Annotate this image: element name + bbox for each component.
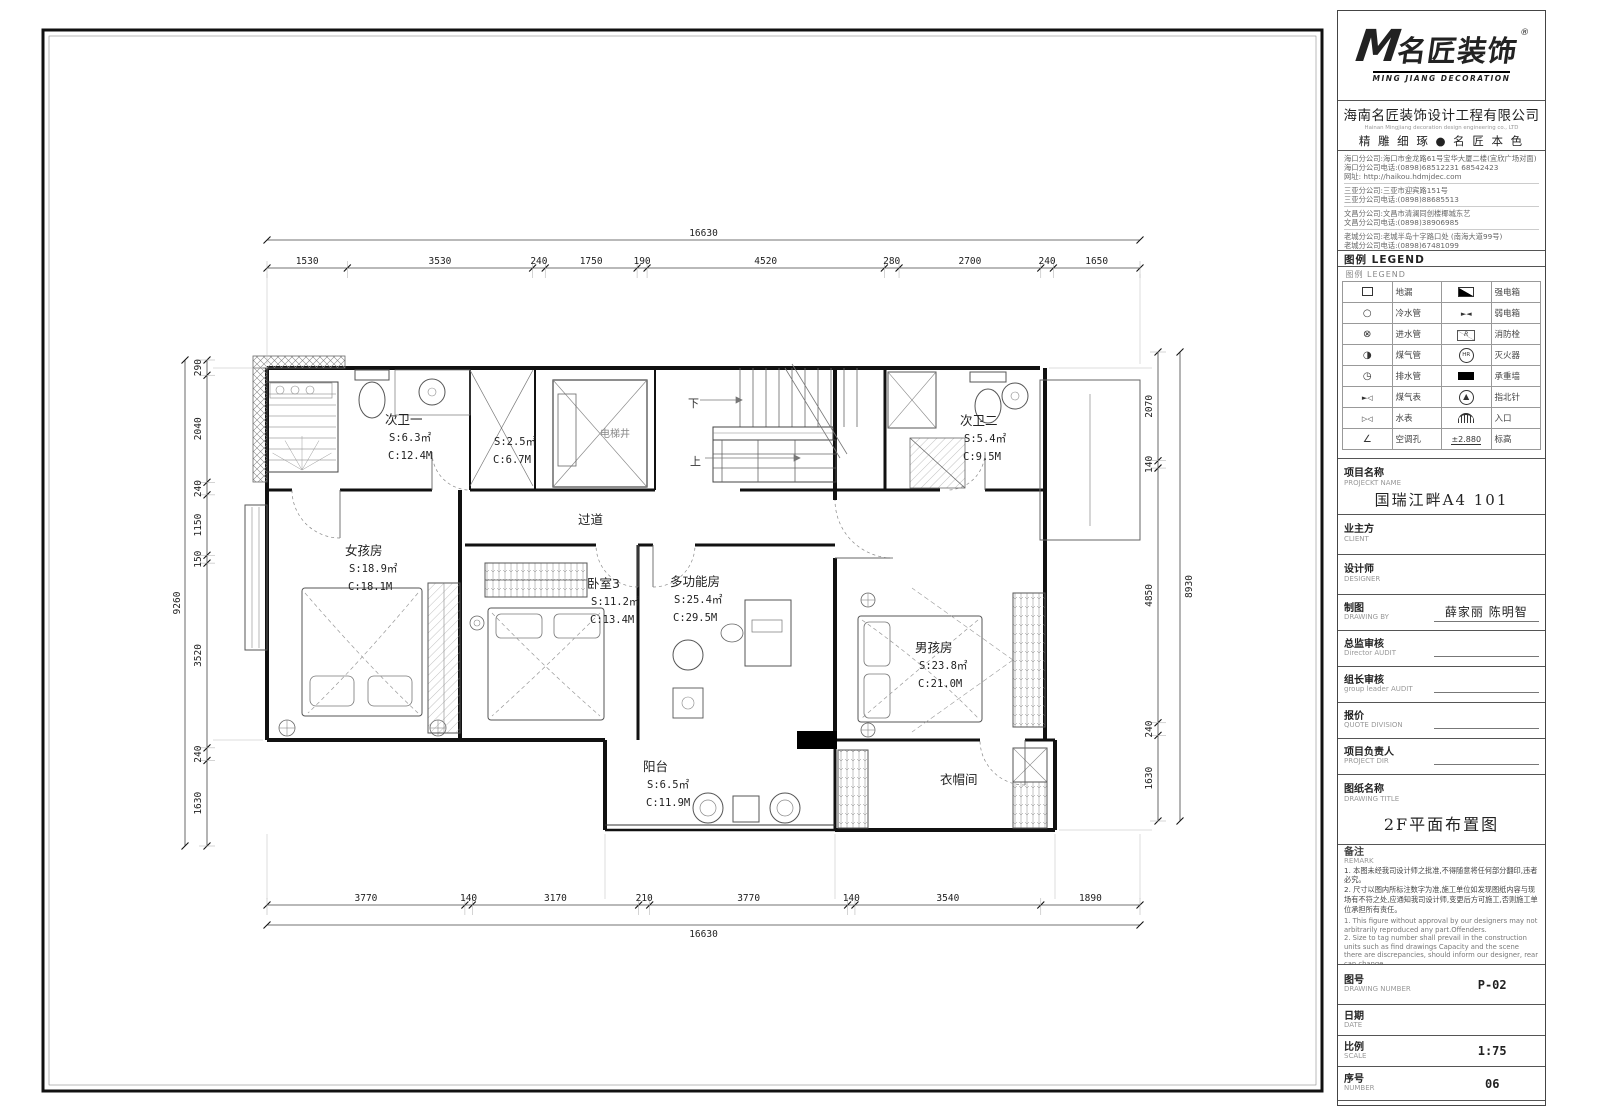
legend-row: ◷ 排水管 承重墙	[1343, 366, 1541, 387]
dim-label: 3530	[429, 256, 452, 267]
legend-label: 指北针	[1491, 387, 1541, 408]
gas-meter-icon: ►◁	[1343, 387, 1393, 408]
remark-section: 备注REMARK1. 本图未经我司设计师之批准,不得随意将任何部分翻印,违者必究…	[1338, 845, 1545, 965]
field-number-value: 06	[1445, 1077, 1539, 1091]
field-quote: 报价QUOTE DIVISION	[1338, 703, 1545, 739]
room-name-cw1: 次卫一	[385, 412, 423, 427]
dim-label: 1890	[1079, 893, 1102, 904]
logo-brand-text: 名匠装饰	[1395, 28, 1521, 70]
dim-label: 4520	[754, 256, 777, 267]
label-elevator: 电梯井	[600, 427, 630, 440]
room-area-cw2: S:5.4㎡	[964, 433, 1007, 445]
bearing-wall-icon	[1442, 366, 1492, 387]
room-area-store: S:2.5㎡	[494, 436, 537, 448]
north-arrow-icon: ▲	[1442, 387, 1492, 408]
field-project-dir-value	[1434, 749, 1539, 765]
legend-label: 冷水管	[1392, 303, 1442, 324]
dim-total: 16630	[689, 929, 718, 940]
dim-label: 290	[193, 359, 204, 376]
branch-line: 三亚分公司电话:(0898)88685513	[1344, 195, 1539, 204]
field-drawing-number: 图号DRAWING NUMBER P-02	[1338, 965, 1545, 1005]
logo-m-icon: M	[1354, 29, 1401, 64]
dim-label: 210	[636, 893, 653, 904]
branch-line: 文昌分公司电话:(0898)38906985	[1344, 218, 1539, 227]
room-perimeter-boy: C:21.0M	[918, 678, 962, 690]
legend-row: ▷◁ 水表 入口	[1343, 408, 1541, 429]
legend-row: 地漏 强电箱	[1343, 282, 1541, 303]
legend-caption: 图例 LEGEND	[1343, 267, 1541, 282]
drain-pipe-icon: ◷	[1343, 366, 1393, 387]
field-director-audit: 总监审核Director AUDIT	[1338, 631, 1545, 667]
dim-label: 3770	[355, 893, 378, 904]
fire-hydrant-icon: R	[1442, 324, 1492, 345]
legend-table: 图例 LEGEND 地漏 强电箱 ○ 冷水管 ►◄ 弱电箱 ⊗ 进水管 R 消防…	[1338, 267, 1545, 459]
branch-group: 海口分公司:海口市金龙路61号宝华大厦二楼(宜欣广场对面)海口分公司电话:(08…	[1344, 152, 1539, 184]
logo-subtitle: MING JIANG DECORATION	[1373, 71, 1511, 83]
legend-row: ○ 冷水管 ►◄ 弱电箱	[1343, 303, 1541, 324]
room-perimeter-br3: C:13.4M	[590, 614, 634, 626]
room-perimeter-multi: C:29.5M	[673, 612, 717, 624]
legend-label: 排水管	[1392, 366, 1442, 387]
field-client-value	[1344, 544, 1539, 552]
room-area-girl: S:18.9㎡	[349, 563, 398, 575]
branch-line: 文昌分公司:文昌市清澜同创楼椰城东艺	[1344, 209, 1539, 218]
field-project-name: 项目名称PROJECKT NAME 国瑞江畔A4 101	[1338, 459, 1545, 515]
gas-pipe-icon: ◑	[1343, 345, 1393, 366]
label-cloakroom: 衣帽间	[940, 772, 978, 787]
dim-total: 8930	[1184, 575, 1195, 598]
branch-line: 三亚分公司:三亚市迎宾路151号	[1344, 186, 1539, 195]
legend-row: ∠ 空调孔 ±2.880 标高	[1343, 429, 1541, 450]
field-drawing-by-value: 薛家丽 陈明智	[1434, 603, 1539, 622]
legend-label: 水表	[1392, 408, 1442, 429]
legend-label: 承重墙	[1491, 366, 1541, 387]
field-date: 日期DATE	[1338, 1005, 1545, 1036]
sheet-border	[43, 30, 1322, 1091]
legend-row: ◑ 煤气管 HR 灭火器	[1343, 345, 1541, 366]
branch-group: 三亚分公司:三亚市迎宾路151号三亚分公司电话:(0898)88685513	[1344, 184, 1539, 207]
legend-label: 地漏	[1392, 282, 1442, 303]
dim-label: 4850	[1144, 584, 1155, 607]
field-designer: 设计师DESIGNER	[1338, 555, 1545, 595]
room-perimeter-store: C:6.7M	[493, 454, 531, 466]
water-meter-icon: ▷◁	[1343, 408, 1393, 429]
dim-label: 3540	[936, 893, 959, 904]
branch-line: 海口分公司电话:(0898)68512231 68542423	[1344, 163, 1539, 172]
room-perimeter-cw1: C:12.4M	[388, 450, 432, 462]
dim-total: 16630	[689, 228, 718, 239]
legend-row: ►◁ 煤气表 ▲ 指北针	[1343, 387, 1541, 408]
dim-label: 2700	[958, 256, 981, 267]
company-slogan: 精 雕 细 琢 ● 名 匠 本 色	[1338, 133, 1545, 149]
legend-label: 入口	[1491, 408, 1541, 429]
room-area-br3: S:11.2㎡	[591, 596, 640, 608]
field-number: 序号NUMBER 06	[1338, 1067, 1545, 1101]
field-director-audit-value	[1434, 641, 1539, 657]
title-fields: 项目名称PROJECKT NAME 国瑞江畔A4 101 业主方CLIENT 设…	[1338, 459, 1545, 845]
dim-label: 240	[1038, 256, 1055, 267]
room-perimeter-cw2: C:9.5M	[963, 451, 1001, 463]
legend-label: 消防栓	[1491, 324, 1541, 345]
dim-label: 3170	[544, 893, 567, 904]
room-name-multi: 多功能房	[670, 574, 720, 589]
cold-water-pipe-icon: ○	[1343, 303, 1393, 324]
dim-label: 190	[633, 256, 650, 267]
dim-label: 1630	[193, 792, 204, 815]
dim-label: 3770	[737, 893, 760, 904]
legend-label: 标高	[1491, 429, 1541, 450]
drawing-sheet: 1530353024017501904520280270024016501663…	[0, 0, 1600, 1120]
legend-label: 空调孔	[1392, 429, 1442, 450]
elevation-icon: ±2.880	[1442, 429, 1492, 450]
field-designer-value	[1344, 584, 1539, 592]
legend-label: 进水管	[1392, 324, 1442, 345]
dim-label: 2040	[193, 417, 204, 440]
company-info: 海南名匠装饰设计工程有限公司 Hainan Mingjiang decorati…	[1338, 101, 1545, 151]
dim-label: 1650	[1085, 256, 1108, 267]
room-perimeter-girl: C:18.1M	[348, 581, 392, 593]
strong-elec-box-icon	[1442, 282, 1492, 303]
floor-drain-icon	[1343, 282, 1393, 303]
field-drawing-number-value: P-02	[1445, 978, 1539, 992]
bottom-fields: 图号DRAWING NUMBER P-02 日期DATE 比例SCALE 1:7…	[1338, 965, 1545, 1105]
dim-label: 240	[193, 745, 204, 762]
dim-label: 2070	[1144, 395, 1155, 418]
branch-line: 网址: http://haikou.hdmjdec.com	[1344, 172, 1539, 181]
room-area-cw1: S:6.3㎡	[389, 432, 432, 444]
legend-label: 弱电箱	[1491, 303, 1541, 324]
floor-plan-svg: 1530353024017501904520280270024016501663…	[40, 28, 1325, 1093]
field-client: 业主方CLIENT	[1338, 515, 1545, 555]
legend-label: 灭火器	[1491, 345, 1541, 366]
branch-line: 海口分公司:海口市金龙路61号宝华大厦二楼(宜欣广场对面)	[1344, 154, 1539, 163]
legend-label: 强电箱	[1491, 282, 1541, 303]
field-scale-value: 1:75	[1445, 1044, 1539, 1058]
plan-static-geometry	[245, 356, 1140, 830]
registered-mark: ®	[1519, 28, 1529, 38]
legend-row: ⊗ 进水管 R 消防栓	[1343, 324, 1541, 345]
room-name-balcony: 阳台	[643, 759, 668, 774]
branch-line: 老城分公司:老城半岛十字路口处 (南海大道99号)	[1344, 232, 1539, 241]
inlet-water-pipe-icon: ⊗	[1343, 324, 1393, 345]
dim-label: 3520	[193, 644, 204, 667]
label-corridor: 过道	[578, 512, 604, 527]
room-name-boy: 男孩房	[915, 640, 953, 655]
room-area-multi: S:25.4㎡	[674, 594, 723, 606]
company-name-en: Hainan Mingjiang decoration design engin…	[1348, 124, 1534, 130]
dim-label: 240	[193, 480, 204, 497]
legend-label: 煤气管	[1392, 345, 1442, 366]
room-name-cw2: 次卫二	[960, 413, 998, 428]
weak-elec-box-icon: ►◄	[1442, 303, 1492, 324]
field-leader-audit: 组长审核group leader AUDIT	[1338, 667, 1545, 703]
field-drawing-title: 图纸名称DRAWING TITLE 2F平面布置图	[1338, 775, 1545, 845]
remark-en: 1. This figure without approval by our d…	[1344, 917, 1539, 965]
room-area-balcony: S:6.5㎡	[647, 779, 690, 791]
field-scale: 比例SCALE 1:75	[1338, 1036, 1545, 1067]
dim-label: 140	[1144, 456, 1155, 473]
label-stair-down: 下	[688, 397, 699, 410]
branch-line: 老城分公司电话:(0898)67481099	[1344, 241, 1539, 250]
legend-title: 图例 LEGEND	[1338, 251, 1545, 267]
field-quote-value	[1434, 713, 1539, 729]
branch-contacts: 海口分公司:海口市金龙路61号宝华大厦二楼(宜欣广场对面)海口分公司电话:(08…	[1338, 151, 1545, 251]
dim-label: 1530	[296, 256, 319, 267]
dim-label: 280	[883, 256, 900, 267]
remark-cn: 1. 本图未经我司设计师之批准,不得随意将任何部分翻印,违者必究。2. 尺寸以图…	[1344, 866, 1539, 915]
company-logo: M 名匠装饰 ® MING JIANG DECORATION	[1338, 11, 1545, 101]
field-drawing-title-value: 2F平面布置图	[1344, 804, 1539, 842]
title-block: M 名匠装饰 ® MING JIANG DECORATION 海南名匠装饰设计工…	[1337, 10, 1546, 1106]
dim-label: 1150	[193, 513, 204, 536]
room-area-boy: S:23.8㎡	[919, 660, 968, 672]
room-name-girl: 女孩房	[345, 543, 383, 558]
dim-label: 140	[843, 893, 860, 904]
legend-label: 煤气表	[1392, 387, 1442, 408]
room-name-br3: 卧室3	[587, 576, 620, 591]
field-drawing-by: 制图DRAWING BY 薛家丽 陈明智	[1338, 595, 1545, 631]
dim-label: 140	[460, 893, 477, 904]
branch-group: 文昌分公司:文昌市清澜同创楼椰城东艺文昌分公司电话:(0898)38906985	[1344, 207, 1539, 230]
dim-label: 1630	[1144, 766, 1155, 789]
branch-group: 老城分公司:老城半岛十字路口处 (南海大道99号)老城分公司电话:(0898)6…	[1344, 230, 1539, 251]
field-project-dir: 项目负责人PROJECT DIR	[1338, 739, 1545, 775]
field-leader-audit-value	[1434, 677, 1539, 693]
field-project-name-value: 国瑞江畔A4 101	[1344, 488, 1539, 512]
dim-label: 1750	[580, 256, 603, 267]
dim-label: 240	[1144, 720, 1155, 737]
ac-hole-icon: ∠	[1343, 429, 1393, 450]
company-name: 海南名匠装饰设计工程有限公司	[1338, 104, 1545, 124]
label-stair-up: 上	[690, 455, 701, 468]
dim-total: 9260	[172, 591, 183, 614]
dim-label: 150	[193, 550, 204, 567]
dim-label: 240	[530, 256, 547, 267]
room-perimeter-balcony: C:11.9M	[646, 797, 690, 809]
entrance-icon	[1442, 408, 1492, 429]
fire-extinguisher-icon: HR	[1442, 345, 1492, 366]
